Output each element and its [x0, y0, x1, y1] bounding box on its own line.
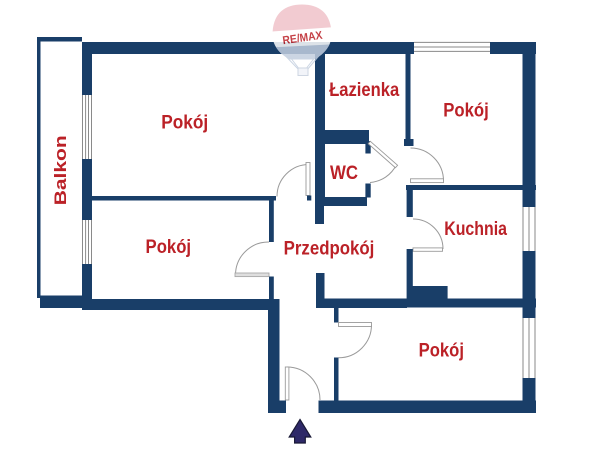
- svg-text:WC: WC: [330, 163, 358, 184]
- svg-text:Kuchnia: Kuchnia: [444, 219, 507, 240]
- svg-text:Pokój: Pokój: [161, 113, 208, 134]
- svg-text:Łazienka: Łazienka: [329, 80, 399, 101]
- svg-text:Pokój: Pokój: [443, 100, 489, 121]
- svg-text:Przedpokój: Przedpokój: [284, 238, 375, 259]
- svg-text:Pokój: Pokój: [419, 341, 464, 362]
- svg-text:Balkon: Balkon: [51, 135, 70, 205]
- svg-text:Pokój: Pokój: [146, 237, 192, 258]
